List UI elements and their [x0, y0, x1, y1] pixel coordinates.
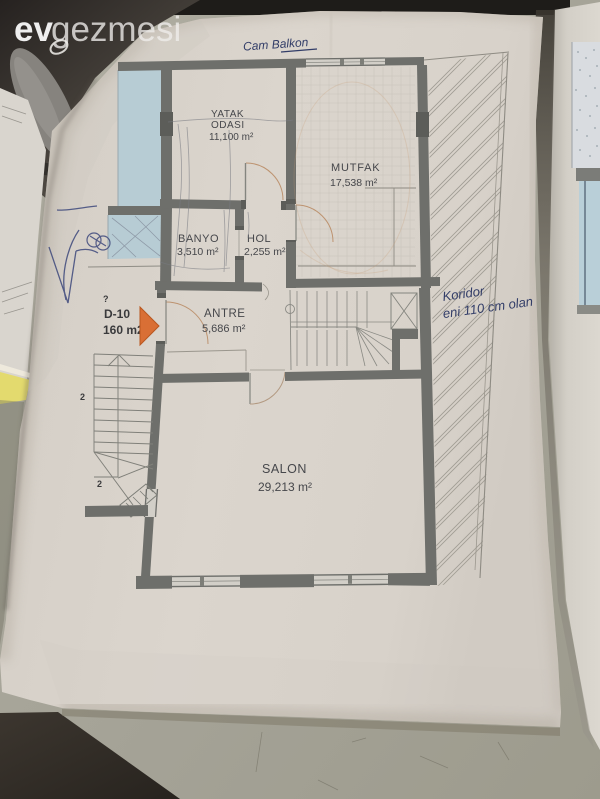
svg-text:2: 2 — [80, 392, 85, 402]
svg-text:MUTFAK: MUTFAK — [331, 162, 380, 174]
svg-text:ANTRE: ANTRE — [204, 308, 245, 320]
svg-text:160 m2: 160 m2 — [103, 323, 144, 337]
svg-text:3,510 m²: 3,510 m² — [177, 246, 219, 258]
svg-text:2,255 m²: 2,255 m² — [244, 246, 286, 258]
svg-text:ev: ev — [14, 10, 53, 49]
svg-text:29,213 m²: 29,213 m² — [258, 480, 312, 494]
svg-text:D-10: D-10 — [104, 307, 130, 321]
svg-text:SALON: SALON — [262, 462, 307, 476]
svg-text:5,686 m²: 5,686 m² — [202, 323, 246, 335]
svg-text:?: ? — [103, 294, 109, 304]
svg-text:ODASI: ODASI — [211, 120, 245, 131]
svg-text:2: 2 — [97, 479, 102, 489]
svg-text:17,538 m²: 17,538 m² — [330, 177, 378, 189]
svg-text:11,100 m²: 11,100 m² — [209, 132, 254, 143]
svg-text:BANYO: BANYO — [178, 233, 219, 245]
svg-text:HOL: HOL — [247, 233, 271, 245]
svg-text:gezmesi: gezmesi — [51, 10, 181, 49]
